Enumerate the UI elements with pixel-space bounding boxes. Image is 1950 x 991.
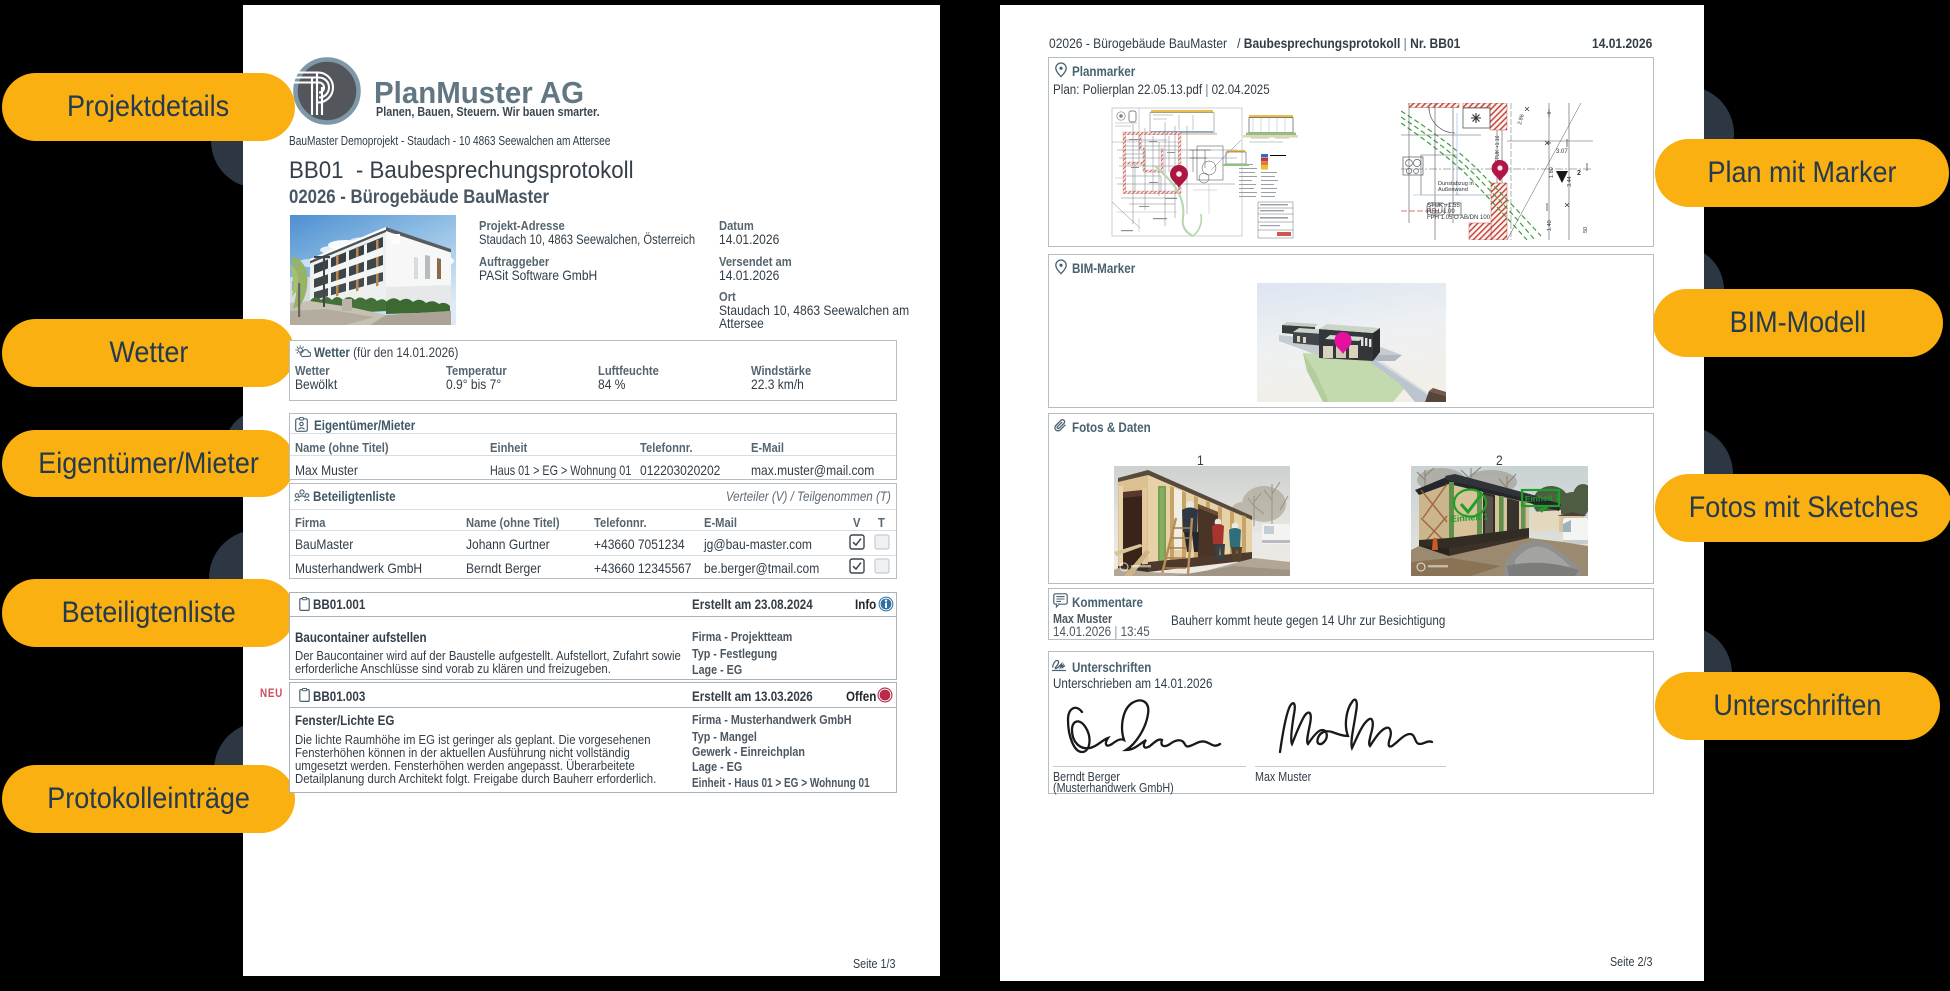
- svg-text:FPH 1.05 O AB/DN 100: FPH 1.05 O AB/DN 100: [1427, 215, 1491, 221]
- svg-text:1.80: 1.80: [1549, 167, 1555, 178]
- svg-text:3.44: 3.44: [1567, 176, 1573, 187]
- svg-text:Außenwand: Außenwand: [1438, 187, 1468, 193]
- svg-text:STUK +1.16: STUK +1.16: [1495, 135, 1501, 163]
- svg-text:2: 2: [1577, 170, 1581, 177]
- svg-text:50: 50: [1583, 227, 1589, 233]
- svg-text:3.07: 3.07: [1556, 149, 1568, 155]
- svg-text:1.40: 1.40: [1547, 220, 1553, 231]
- svg-text:Einheit 2: Einheit 2: [1525, 492, 1561, 504]
